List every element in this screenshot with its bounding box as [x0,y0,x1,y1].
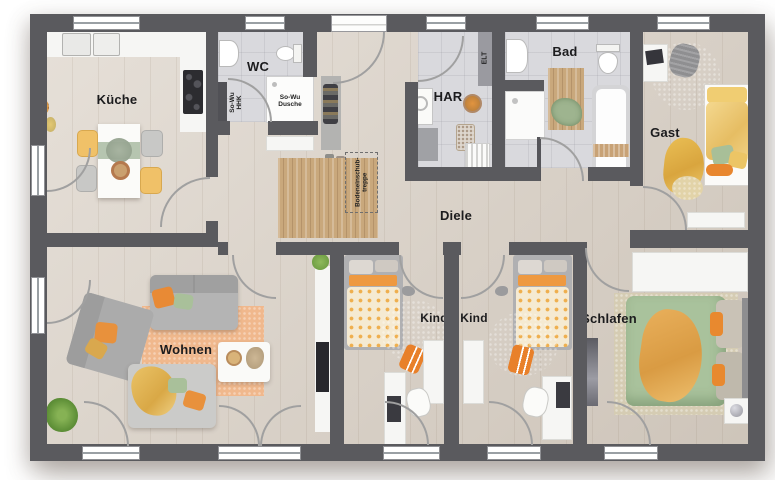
entrance-door [331,15,387,32]
treppe-annotation: Bodeneinschub-treppe [354,158,368,207]
wall-wc-bottom [206,121,230,135]
schlafen-wardrobe [632,252,748,292]
kind1-blanket-band [349,275,397,286]
kind2-pillow [544,260,567,272]
shower-drain [272,82,277,87]
window-schlafen [604,446,658,460]
room-label-bad: Bad [545,44,585,59]
elt-cabinet: ELT [478,31,492,86]
plush-toy [495,286,508,296]
wall-wc-bottom-2 [268,121,318,135]
room-label-diele: Diele [433,208,479,223]
floor-plan: Küche So-WuHHK So-WuDusche WC ELT HAR Ba… [0,0,775,480]
gast-bed-pillow [707,87,747,103]
laptop [645,49,664,65]
bad-toilet-tank [596,44,620,52]
bad-sink [506,39,528,73]
kind2-blanket-band [518,275,566,286]
kind1-pillow [349,260,373,274]
window-gast [657,16,710,30]
window-har [426,16,466,30]
kind2-wardrobe [463,340,484,404]
wall-top [30,14,765,32]
wall-shower-stub [505,80,544,91]
window-wohnen-terrace [218,446,301,460]
wall-gast-schlafen [630,230,765,248]
chair [141,130,163,157]
table-plant [106,138,132,163]
wall-kueche-wohnen [30,233,218,247]
window-wohnen-1 [82,446,140,460]
window-wc [245,16,285,30]
so-wu-dusche-annotation: So-WuDusche [268,94,312,109]
kitchen-sink [62,33,91,56]
hall-cabinet [266,136,314,151]
towel-radiator [218,82,227,122]
room-label-wc: WC [238,59,278,74]
kind1-pillow [375,260,398,272]
kind2-monitor [556,382,570,408]
window-bad [536,16,589,30]
pillow-green [173,293,194,310]
room-label-har: HAR [418,89,478,104]
cushion-orange [712,364,725,386]
wall-har-bottom [405,167,505,181]
wall-kind2-schlafen [573,242,587,444]
window-kind1 [383,446,440,460]
cooktop [183,70,203,114]
wall-kueche-wc [206,31,218,177]
wall-wc-entry [303,31,317,77]
wall-wohnen-kind1 [330,242,344,444]
coats [323,84,338,124]
room-label-gast: Gast [642,125,688,140]
gast-sideboard [687,212,745,228]
room-label-wohnen: Wohnen [146,342,226,357]
wc-sink [219,40,239,67]
room-label-kueche: Küche [77,92,157,107]
doormat [672,176,703,200]
wall-corridor-1 [218,242,228,255]
bathtub-inner [596,89,626,175]
window-kueche [73,16,140,30]
bad-shower [505,91,545,140]
window-wohnen-left [31,277,45,334]
pillow-green [168,378,187,393]
bathtub-caddy [593,144,629,157]
gast-pillow-orange [706,164,733,176]
window-kind2 [487,446,541,460]
nightstand-lamp [730,404,743,417]
tv [316,342,329,392]
wall-kind1-kind2 [444,242,459,444]
wc-toilet-tank [293,44,302,63]
copper-pot [111,161,130,180]
elt-annotation: ELT [481,52,489,65]
wall-har-bad [492,31,505,181]
kind2-pillow [518,260,542,274]
chair [140,167,162,194]
bad-shower-drain [512,98,518,104]
wall-bad-gast [630,14,643,186]
attic-stairs-outline: Bodeneinschub-treppe [345,152,378,213]
potted-plant [46,398,78,432]
window-kueche-left [31,145,45,196]
kitchen-sink-2 [93,33,120,56]
cushion-orange [710,312,723,336]
wall-bad-bottom [492,167,540,181]
table-tray [226,350,242,366]
